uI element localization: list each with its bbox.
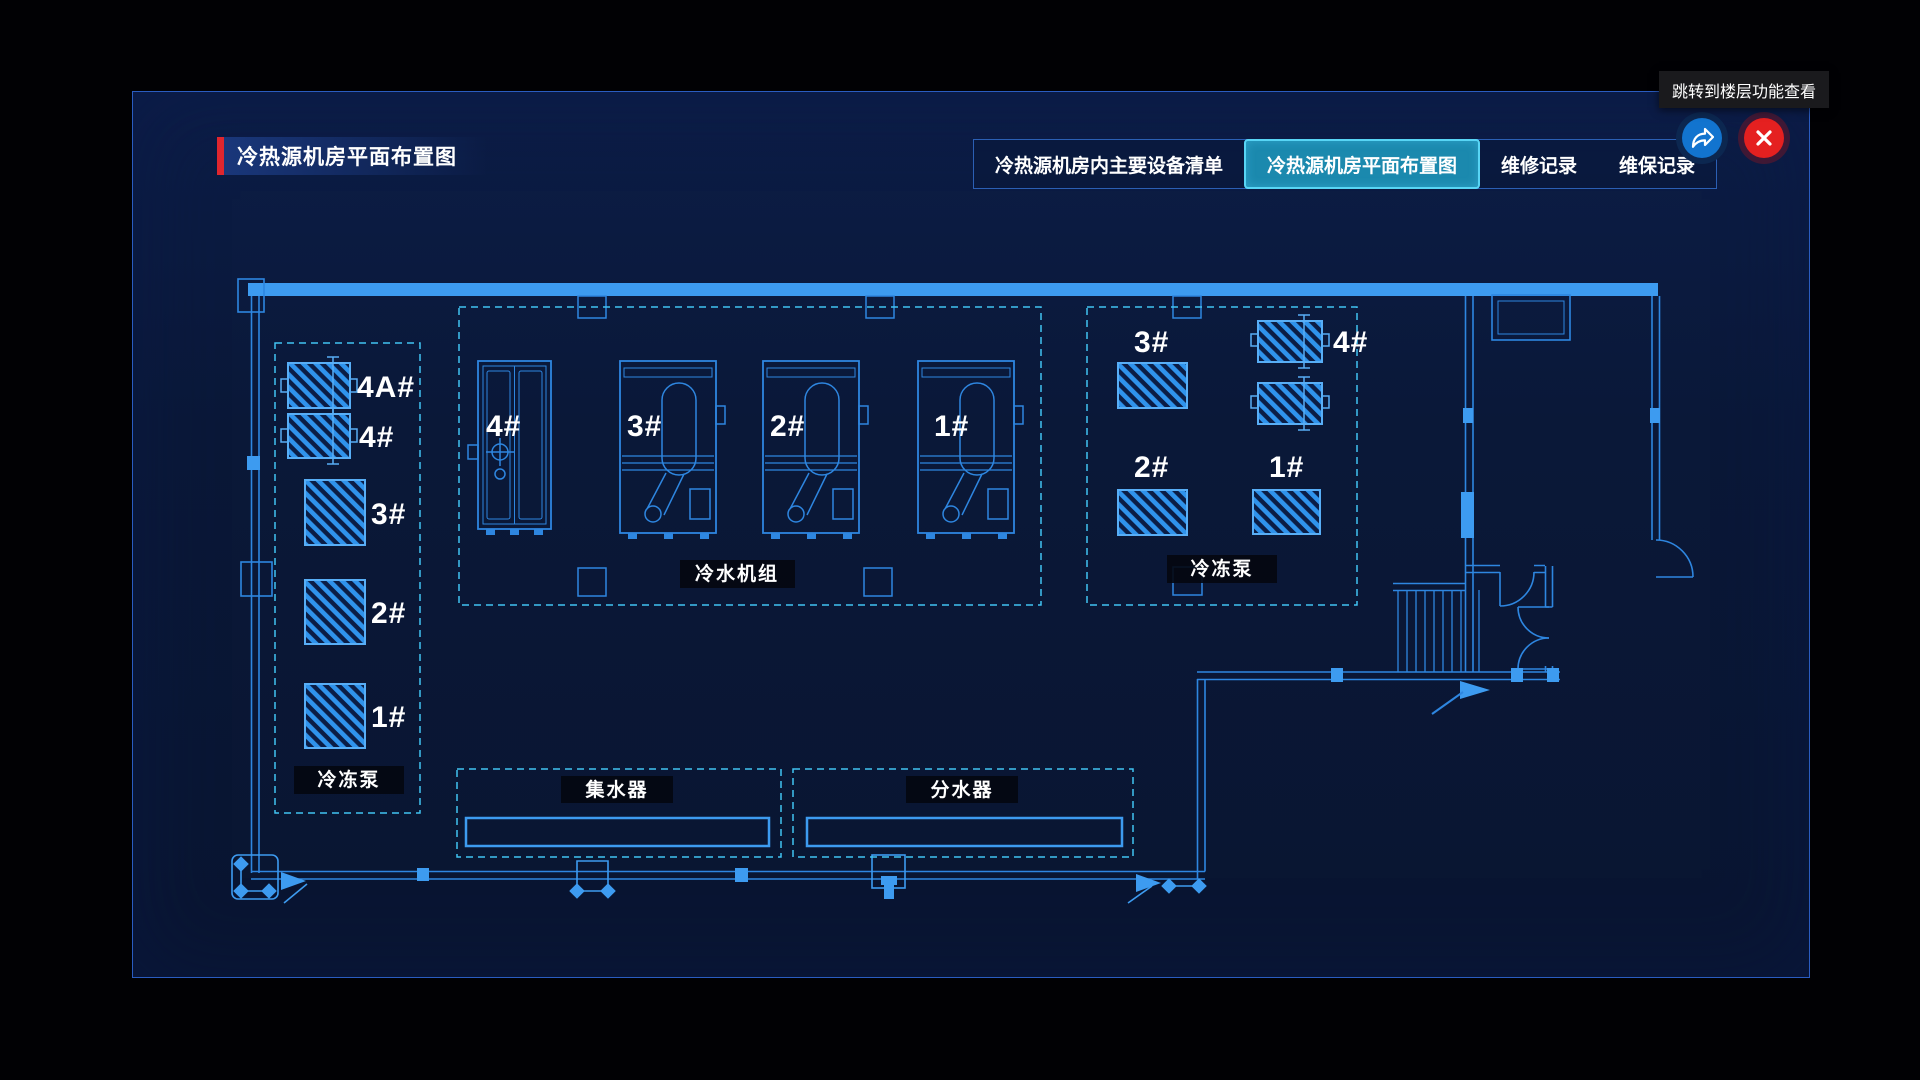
pump-r4-upper[interactable]	[1251, 315, 1329, 368]
badge-label: 冷冻泵	[317, 768, 380, 791]
unit-label: 3#	[627, 410, 662, 443]
pump-3[interactable]	[305, 480, 365, 545]
doors	[1500, 540, 1693, 669]
pump-r4-lower[interactable]	[1251, 377, 1329, 430]
section-right-pumps: 3# 4# 2# 1# 冷冻泵	[1087, 307, 1368, 605]
unit-label: 4A#	[357, 371, 415, 404]
unit-label: 4#	[359, 421, 394, 454]
pump-r3[interactable]	[1118, 363, 1187, 408]
double-door-lower	[1518, 638, 1549, 669]
chiller-1[interactable]	[918, 361, 1023, 539]
unit-label: 1#	[934, 410, 969, 443]
chiller-4[interactable]	[468, 361, 551, 535]
door-outer-right	[1656, 540, 1693, 577]
section-left-pumps: 4A# 4# 3# 2# 1# 冷冻泵	[275, 343, 420, 813]
badge-label: 冷水机组	[695, 562, 779, 585]
pump-2[interactable]	[305, 580, 365, 644]
unit-label: 4#	[486, 410, 521, 443]
pump-1[interactable]	[305, 684, 365, 748]
double-door-upper	[1518, 607, 1549, 638]
chiller-2[interactable]	[763, 361, 868, 539]
tooltip: 跳转到楼层功能查看	[1659, 71, 1829, 108]
door-interior	[1500, 572, 1534, 606]
unit-label: 1#	[1269, 451, 1304, 484]
distributor-vessel[interactable]	[807, 818, 1122, 846]
badge-label: 集水器	[584, 778, 648, 801]
collector-vessel[interactable]	[466, 818, 769, 846]
badge-label: 分水器	[930, 779, 993, 801]
unit-label: 3#	[1134, 326, 1169, 359]
section-distributor: 分水器	[793, 769, 1133, 857]
stair-direction-arrow	[1460, 681, 1490, 699]
unit-label: 4#	[1333, 326, 1368, 359]
unit-label: 1#	[371, 701, 406, 734]
pump-4a[interactable]	[281, 357, 357, 414]
pump-r1[interactable]	[1253, 490, 1320, 534]
pump-4[interactable]	[281, 408, 357, 464]
pump-r2[interactable]	[1118, 490, 1187, 535]
floorplan: 4A# 4# 3# 2# 1# 冷冻泵	[0, 0, 1920, 1080]
top-wall	[248, 283, 1658, 296]
badge-label: 冷冻泵	[1190, 557, 1253, 580]
right-room-equipment	[1492, 295, 1570, 340]
tooltip-text: 跳转到楼层功能查看	[1672, 78, 1816, 102]
section-collector: 集水器	[457, 769, 781, 857]
unit-label: 3#	[371, 498, 406, 531]
unit-label: 2#	[1134, 451, 1169, 484]
section-chillers: 4# 3#	[459, 307, 1041, 605]
unit-label: 2#	[371, 597, 406, 630]
chiller-3[interactable]	[620, 361, 725, 539]
wall-pilaster	[241, 562, 272, 596]
stairs	[1398, 590, 1490, 714]
unit-label: 2#	[770, 410, 805, 443]
columns	[578, 296, 1202, 596]
screen: { "tooltip": { "text": "跳转到楼层功能查看" }, "h…	[0, 0, 1920, 1080]
